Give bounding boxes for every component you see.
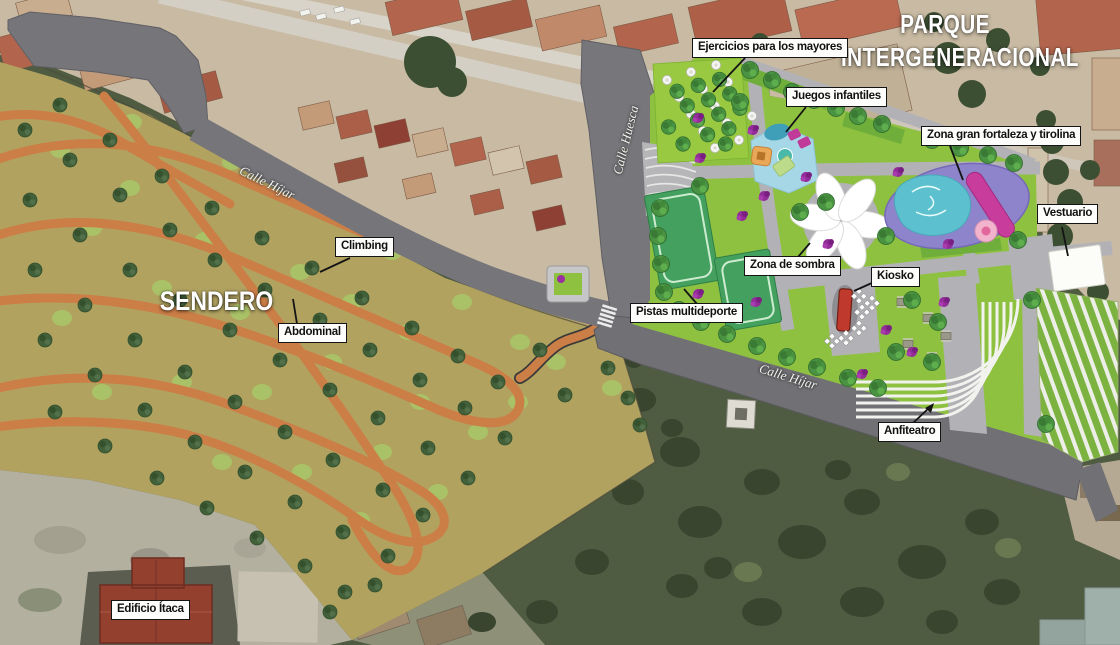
map-title-line2: INTERGENERACIONAL	[841, 41, 1049, 74]
map-artwork	[0, 0, 1120, 645]
map-title-line1: PARQUE	[841, 8, 1049, 41]
label-juegos-infantiles: Juegos infantiles	[786, 87, 887, 107]
planting-terraces	[1036, 288, 1118, 462]
map-title: PARQUE INTERGENERACIONAL	[841, 8, 1049, 74]
label-edificio-itaca: Edificio Ítaca	[111, 600, 190, 620]
label-zona-de-sombra: Zona de sombra	[744, 256, 841, 276]
label-ejercicios: Ejercicios para los mayores	[692, 38, 848, 58]
label-abdominal: Abdominal	[278, 323, 347, 343]
label-climbing: Climbing	[335, 237, 394, 257]
label-vestuario: Vestuario	[1037, 204, 1098, 224]
sendero-zone-label: SENDERO	[160, 286, 271, 317]
label-kiosko: Kiosko	[871, 267, 920, 287]
planter-square	[547, 266, 589, 302]
label-fortaleza-tirolina: Zona gran fortaleza y tirolina	[921, 126, 1081, 146]
park-plan-map: PARQUE INTERGENERACIONAL SENDERO Calle H…	[0, 0, 1120, 645]
changing-room-building	[1048, 245, 1105, 292]
label-anfiteatro: Anfiteatro	[878, 422, 941, 442]
label-pistas-multideporte: Pistas multideporte	[630, 303, 743, 323]
